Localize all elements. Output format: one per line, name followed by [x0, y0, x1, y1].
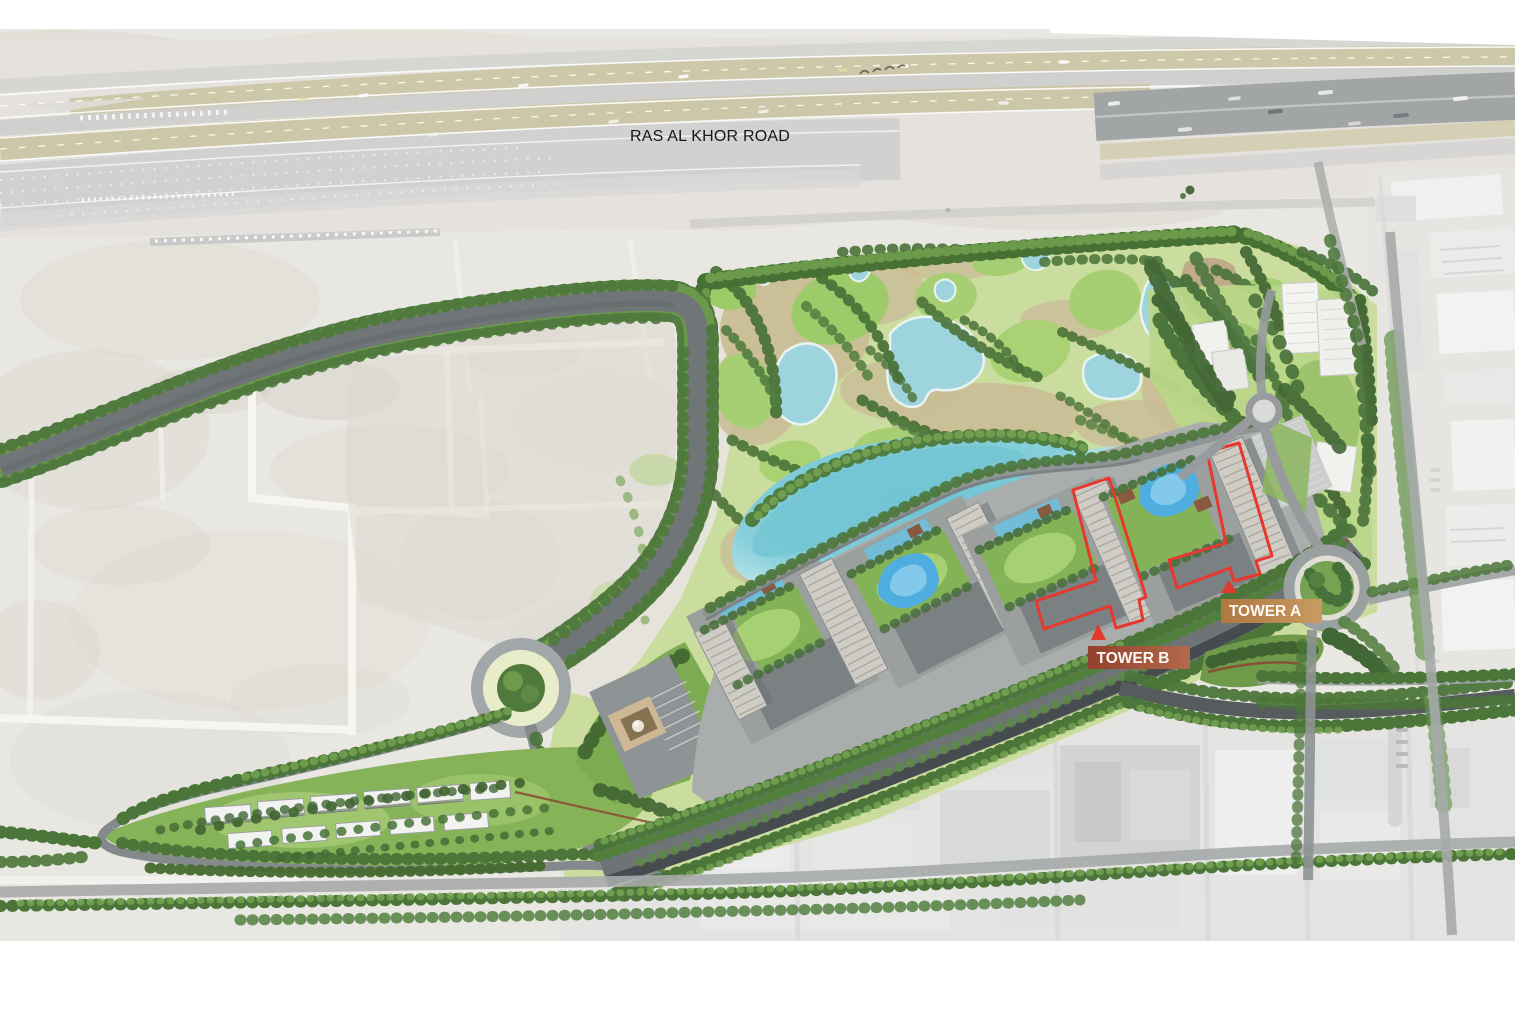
svg-text:TOWER A: TOWER A — [1229, 603, 1301, 620]
svg-text:TOWER B: TOWER B — [1097, 650, 1170, 667]
svg-text:RAS AL KHOR ROAD: RAS AL KHOR ROAD — [630, 128, 790, 145]
